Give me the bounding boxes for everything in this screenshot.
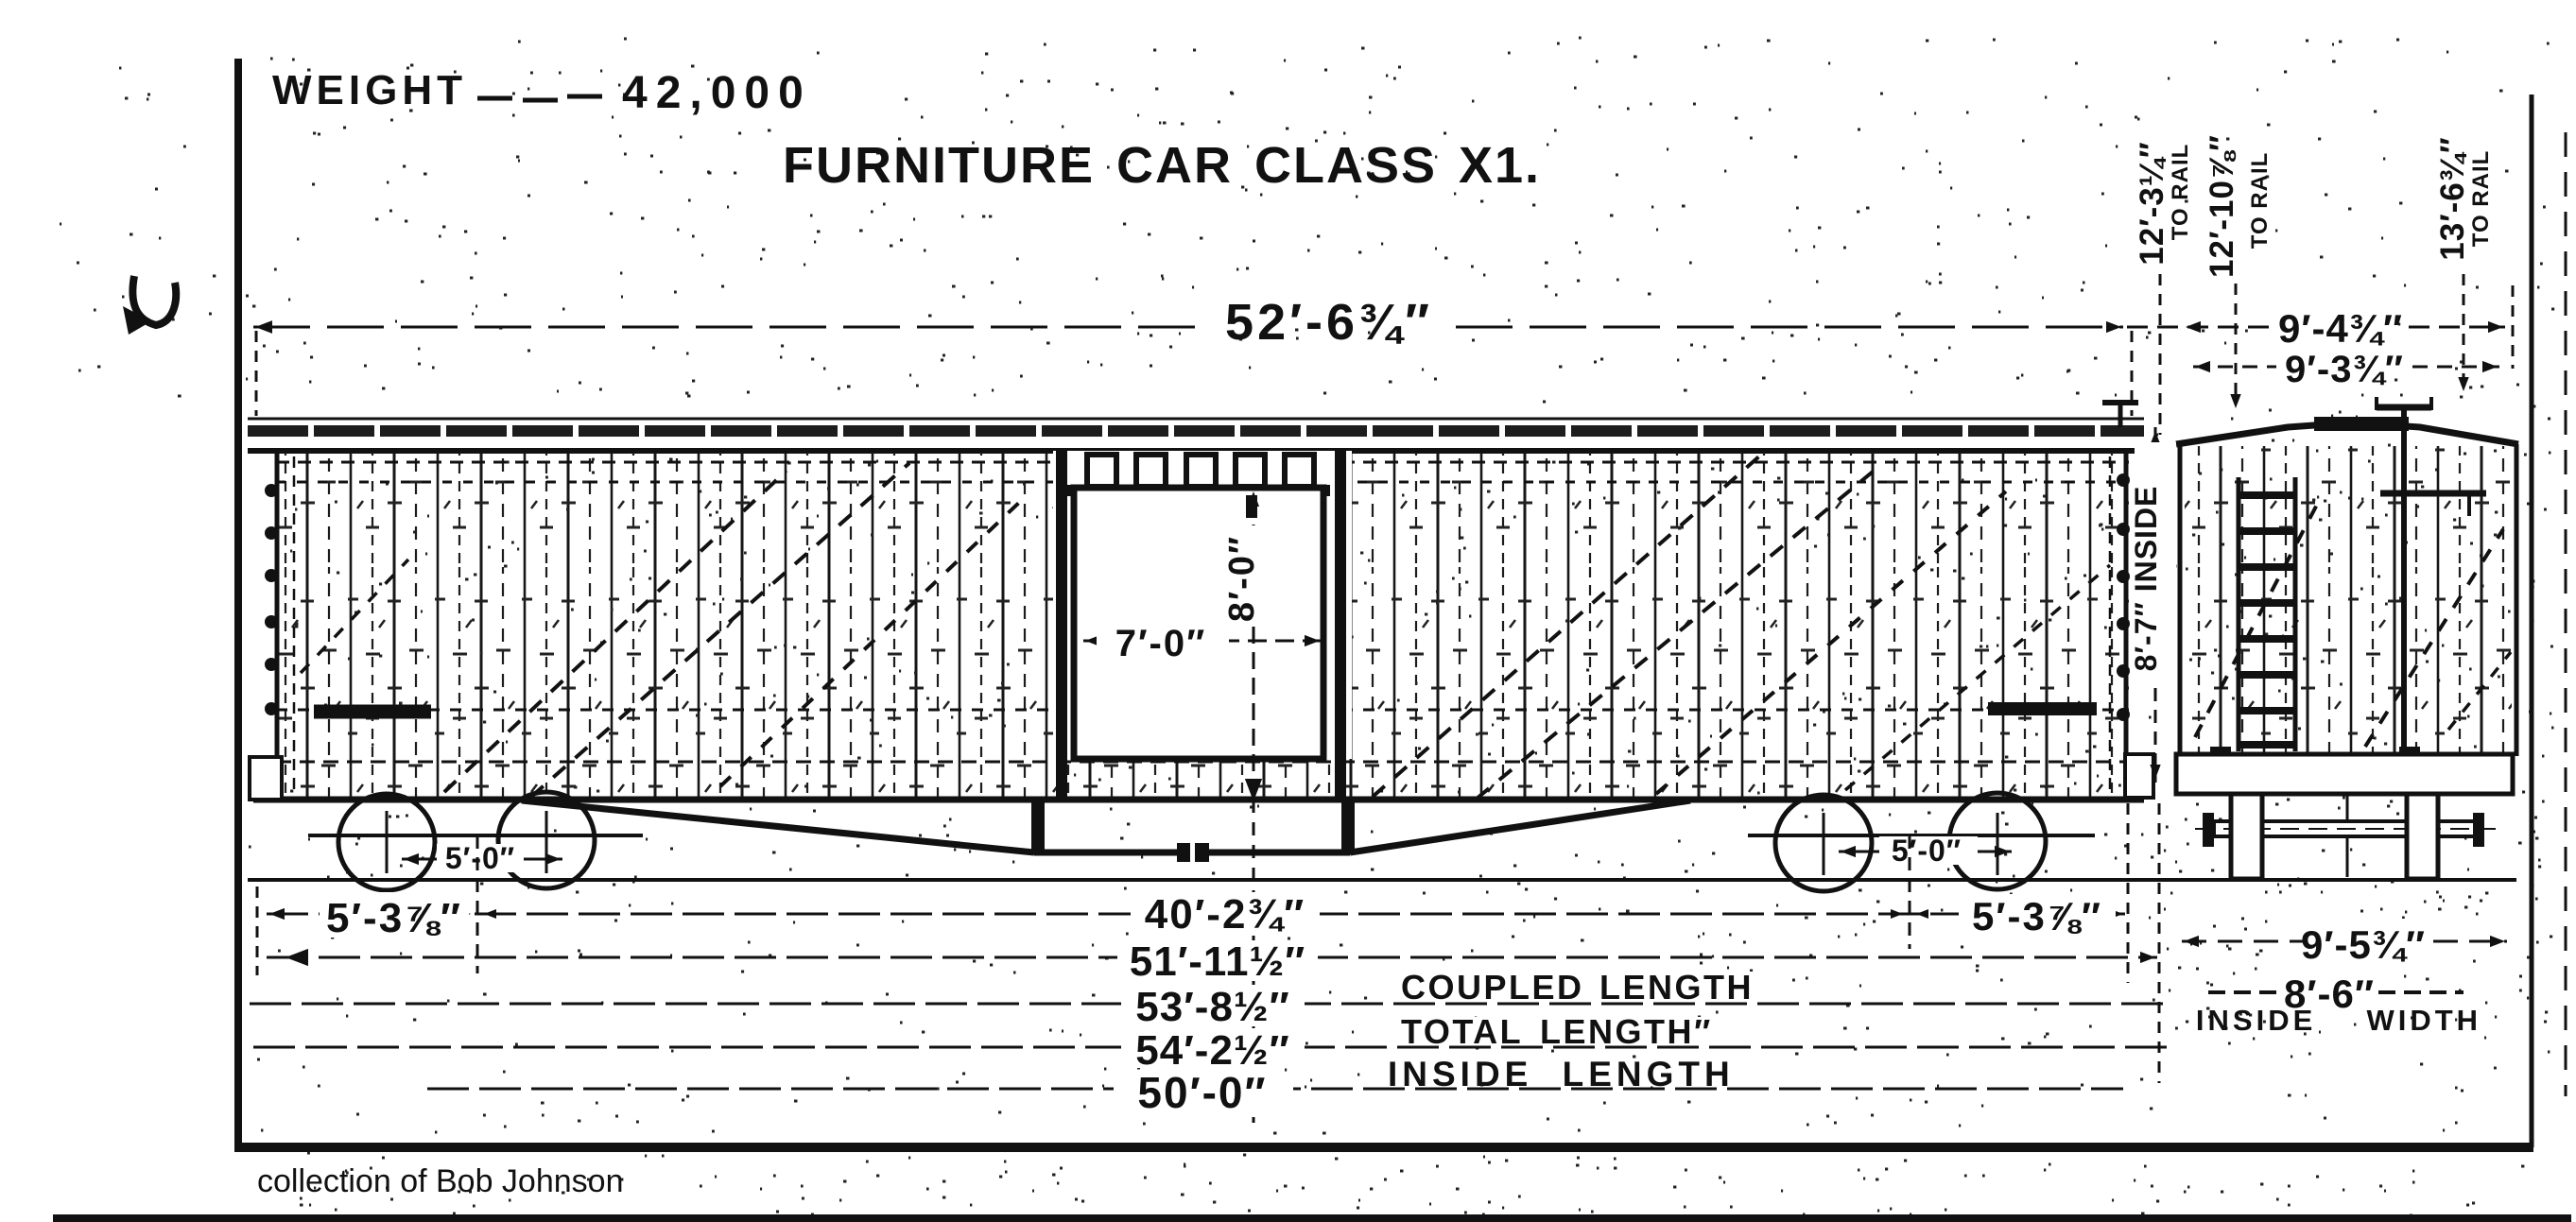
svg-text:TOTAL LENGTH″: TOTAL LENGTH″ <box>1401 1012 1713 1051</box>
svg-text:12′-10⅞″: 12′-10⅞″ <box>2204 134 2240 278</box>
svg-text:TO RAIL: TO RAIL <box>2468 150 2494 248</box>
svg-text:5′-3⅞″: 5′-3⅞″ <box>326 895 462 941</box>
svg-text:50′-0″: 50′-0″ <box>1137 1068 1267 1117</box>
svg-text:INSIDE WIDTH: INSIDE WIDTH <box>2196 1004 2481 1037</box>
svg-text:8′-0″: 8′-0″ <box>1222 535 1262 622</box>
svg-text:12′-3¼″: 12′-3¼″ <box>2134 141 2170 265</box>
svg-text:5′-3⅞″: 5′-3⅞″ <box>1972 894 2102 938</box>
svg-text:13′-6¾″: 13′-6¾″ <box>2434 136 2471 260</box>
svg-text:53′-8½″: 53′-8½″ <box>1135 984 1289 1030</box>
svg-text:9′-3¾″: 9′-3¾″ <box>2285 349 2404 390</box>
svg-text:INSIDE LENGTH: INSIDE LENGTH <box>1388 1055 1735 1093</box>
svg-text:WEIGHT: WEIGHT <box>272 67 467 113</box>
svg-text:TO RAIL: TO RAIL <box>2247 152 2273 250</box>
svg-text:40′-2¾″: 40′-2¾″ <box>1145 891 1305 938</box>
svg-text:51′-11½″: 51′-11½″ <box>1130 938 1305 985</box>
svg-text:collection of Bob Johnson: collection of Bob Johnson <box>257 1163 623 1199</box>
svg-text:TO RAIL: TO RAIL <box>2168 144 2193 241</box>
svg-text:9′-5¾″: 9′-5¾″ <box>2301 922 2426 967</box>
svg-text:FURNITURE CAR CLASS X1.: FURNITURE CAR CLASS X1. <box>783 137 1541 194</box>
svg-text:9′-4¾″: 9′-4¾″ <box>2278 306 2403 351</box>
svg-text:8′-7″ INSIDE: 8′-7″ INSIDE <box>2129 486 2163 672</box>
svg-text:5′-0″: 5′-0″ <box>1892 834 1962 868</box>
svg-text:7′-0″: 7′-0″ <box>1115 623 1207 664</box>
svg-text:5′-0″: 5′-0″ <box>445 841 515 875</box>
svg-text:COUPLED LENGTH: COUPLED LENGTH <box>1401 968 1754 1007</box>
svg-text:42,000: 42,000 <box>622 68 812 118</box>
svg-text:52′-6¾″: 52′-6¾″ <box>1225 294 1433 351</box>
svg-text:54′-2½″: 54′-2½″ <box>1135 1027 1289 1074</box>
